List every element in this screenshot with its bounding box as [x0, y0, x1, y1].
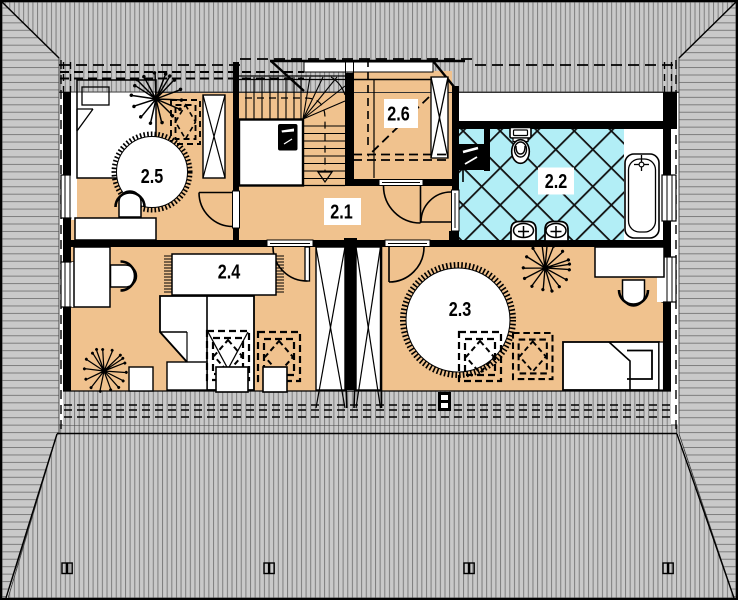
svg-text:2.1: 2.1 — [330, 202, 353, 224]
svg-text:2.2: 2.2 — [545, 171, 568, 193]
svg-text:2.3: 2.3 — [449, 299, 472, 321]
svg-text:2.4: 2.4 — [218, 262, 241, 284]
svg-text:2.6: 2.6 — [387, 104, 410, 126]
svg-text:2.5: 2.5 — [141, 166, 164, 188]
